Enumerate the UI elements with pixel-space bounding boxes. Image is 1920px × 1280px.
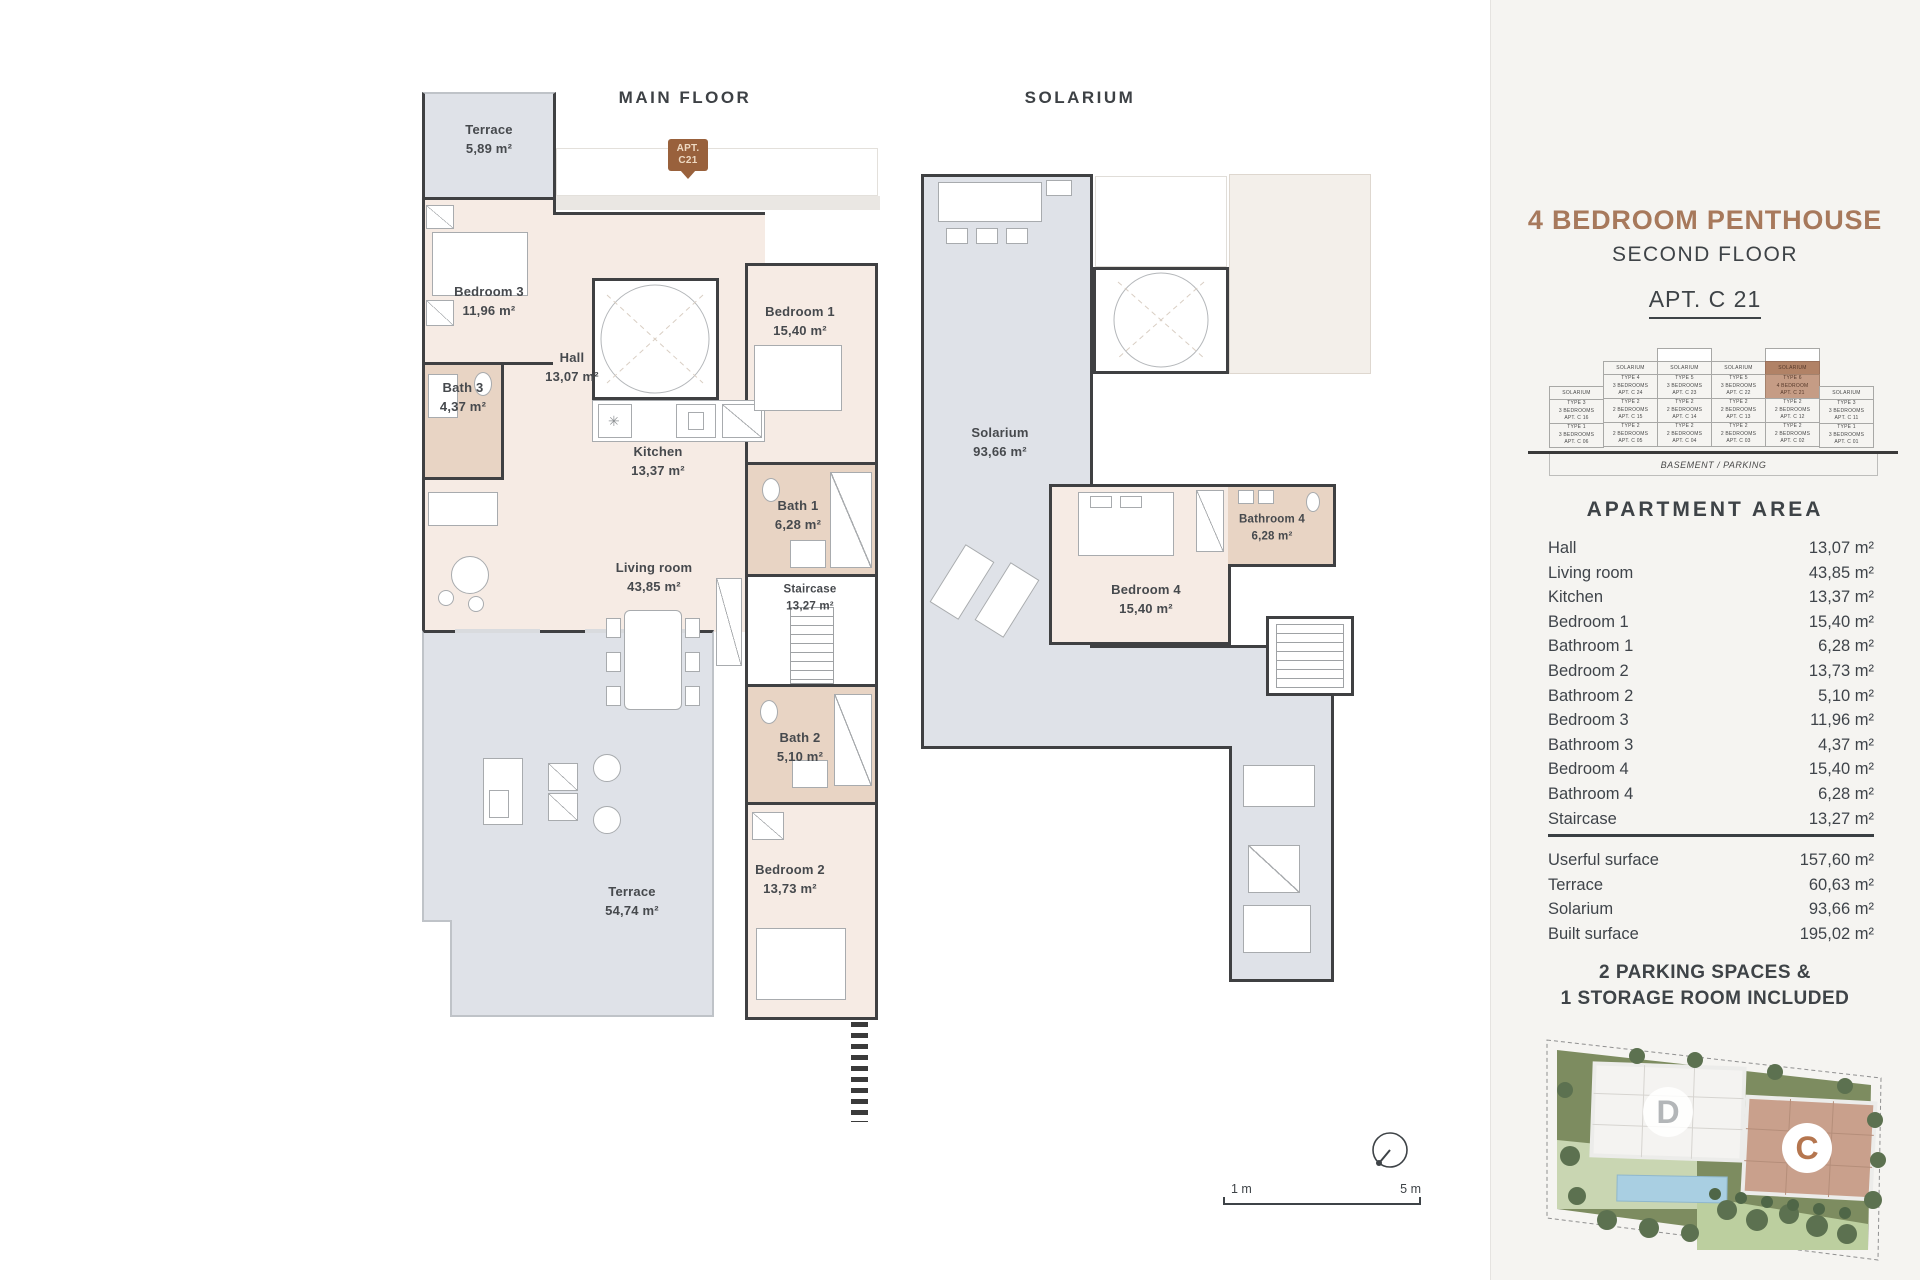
- building-stack-diagram: SOLARIUM TYPE 33 BEDROOMSAPT. C 16 TYPE …: [1549, 348, 1874, 448]
- stack-unit-c11[interactable]: TYPE 33 BEDROOMSAPT. C 11: [1819, 399, 1874, 424]
- pillow-icon: [1120, 496, 1142, 508]
- room-label: Bath 16,28 m²: [775, 497, 821, 535]
- room-label: Hall13,07 m²: [545, 349, 599, 387]
- parking-note-line1: 2 PARKING SPACES &: [1490, 962, 1920, 984]
- total-row: Built surface195,02 m²: [1548, 922, 1874, 947]
- stack-solarium-tag: SOLARIUM: [1657, 361, 1712, 375]
- sliding-door-opening: [455, 629, 540, 633]
- sink-icon: [1258, 490, 1274, 504]
- bed-icon: [754, 345, 842, 411]
- area-row: Bathroom 16,28 m²: [1548, 634, 1874, 659]
- neighbor-outline: [556, 148, 878, 196]
- stack-unit-c01[interactable]: TYPE 13 BEDROOMSAPT. C 01: [1819, 423, 1874, 448]
- chair-icon: [685, 652, 700, 672]
- basement-label: BASEMENT / PARKING: [1549, 454, 1878, 476]
- room-label: Terrace54,74 m²: [605, 883, 659, 921]
- stack-solarium-tag: SOLARIUM: [1549, 386, 1604, 400]
- area-row: Living room43,85 m²: [1548, 561, 1874, 586]
- wardrobe-icon: [426, 300, 454, 326]
- stack-unit-c21-selected[interactable]: TYPE 64 BEDROOMAPT. C 21: [1765, 374, 1820, 399]
- total-row: Terrace60,63 m²: [1548, 873, 1874, 898]
- page-title: 4 BEDROOM PENTHOUSE: [1490, 205, 1920, 236]
- pool: [1617, 1175, 1727, 1203]
- total-row: Userful surface157,60 m²: [1548, 848, 1874, 873]
- area-row: Bathroom 46,28 m²: [1548, 782, 1874, 807]
- room-label: Bedroom 115,40 m²: [765, 303, 835, 341]
- apt-location-pin[interactable]: APT. C21: [668, 139, 708, 171]
- floor-subtitle: SECOND FLOOR: [1490, 243, 1920, 267]
- chair-icon: [685, 618, 700, 638]
- scale-line: [1223, 1203, 1421, 1205]
- stack-unit-c02[interactable]: TYPE 22 BEDROOMSAPT. C 02: [1765, 422, 1820, 447]
- stack-unit-c15[interactable]: TYPE 22 BEDROOMSAPT. C 15: [1603, 398, 1658, 423]
- patio-circle-main: [595, 281, 716, 397]
- dining-table-icon: [624, 610, 682, 710]
- scale-bar: 1 m 5 m: [1223, 1182, 1421, 1210]
- neighbor-outline: [1095, 176, 1227, 267]
- site-map: D C: [1545, 1028, 1901, 1274]
- apt-pin-line2: C21: [668, 155, 708, 167]
- stool-icon: [468, 596, 484, 612]
- stack-column: SOLARIUM TYPE 43 BEDROOMSAPT. C 24 TYPE …: [1603, 348, 1658, 448]
- stack-solarium-tag: SOLARIUM: [1819, 386, 1874, 400]
- area-table-heading: APARTMENT AREA: [1490, 498, 1920, 522]
- chair-icon: [606, 652, 621, 672]
- stack-unit-c12[interactable]: TYPE 22 BEDROOMSAPT. C 12: [1765, 398, 1820, 423]
- stack-unit-c14[interactable]: TYPE 22 BEDROOMSAPT. C 14: [1657, 398, 1712, 423]
- stack-unit-c24[interactable]: TYPE 43 BEDROOMSAPT. C 24: [1603, 374, 1658, 399]
- stool-icon: [438, 590, 454, 606]
- outdoor-table-icon: [938, 182, 1042, 222]
- area-table: Hall13,07 m² Living room43,85 m² Kitchen…: [1548, 536, 1874, 831]
- stack-column: SOLARIUM TYPE 33 BEDROOMSAPT. C 11 TYPE …: [1819, 348, 1874, 448]
- stack-column-highlighted: SOLARIUM TYPE 64 BEDROOMAPT. C 21 TYPE 2…: [1765, 348, 1820, 448]
- area-row: Kitchen13,37 m²: [1548, 585, 1874, 610]
- stack-unit-c05[interactable]: TYPE 22 BEDROOMSAPT. C 05: [1603, 422, 1658, 447]
- area-row: Bathroom 34,37 m²: [1548, 733, 1874, 758]
- room-label: Bedroom 311,96 m²: [454, 283, 524, 321]
- table-divider: [1548, 834, 1874, 837]
- solarium-title: SOLARIUM: [1025, 88, 1136, 108]
- stack-unit-c22[interactable]: TYPE 53 BEDROOMSAPT. C 22: [1711, 374, 1766, 399]
- stair-treads-main: [790, 607, 834, 684]
- planter-icon: [548, 763, 578, 791]
- stack-roof-block: [1657, 348, 1712, 362]
- room-label: Terrace5,89 m²: [465, 121, 512, 159]
- room-label: Living room43,85 m²: [616, 559, 693, 597]
- building-d-label: D: [1656, 1094, 1679, 1130]
- outdoor-desk-icon: [1243, 905, 1311, 953]
- neighbor-roof: [1229, 174, 1371, 374]
- terrace-chair-icon: [489, 790, 509, 818]
- scale-tick: [1419, 1197, 1421, 1205]
- area-row: Bathroom 25,10 m²: [1548, 684, 1874, 709]
- area-row: Bedroom 115,40 m²: [1548, 610, 1874, 635]
- building-c-label: C: [1795, 1130, 1818, 1166]
- room-terrace-extension: [450, 920, 714, 1017]
- area-row: Bedroom 415,40 m²: [1548, 757, 1874, 782]
- chair-icon: [685, 686, 700, 706]
- scale-tick: [1223, 1197, 1225, 1205]
- neighbor-band: [553, 196, 880, 210]
- room-label: Staircase13,27 m²: [784, 581, 837, 614]
- planter-icon: [548, 793, 578, 821]
- area-row: Hall13,07 m²: [1548, 536, 1874, 561]
- room-label: Kitchen13,37 m²: [631, 443, 685, 481]
- stack-unit-c04[interactable]: TYPE 22 BEDROOMSAPT. C 04: [1657, 422, 1712, 447]
- area-row: Staircase13,27 m²: [1548, 807, 1874, 832]
- wardrobe-icon: [426, 205, 454, 229]
- planter-icon: [1248, 845, 1300, 893]
- stack-unit-c13[interactable]: TYPE 22 BEDROOMSAPT. C 13: [1711, 398, 1766, 423]
- sink-icon: [1238, 490, 1254, 504]
- room-label: Bath 34,37 m²: [440, 379, 486, 417]
- round-table-icon: [451, 556, 489, 594]
- apt-pin-line1: APT.: [668, 143, 708, 155]
- pillow-icon: [1090, 496, 1112, 508]
- vent-icon: ✳: [608, 414, 620, 428]
- parking-note-line2: 1 STORAGE ROOM INCLUDED: [1490, 988, 1920, 1010]
- room-label: Bathroom 46,28 m²: [1239, 511, 1305, 544]
- stack-roof-block: [1765, 348, 1820, 362]
- ground-line: [1528, 451, 1898, 454]
- chair-icon: [606, 618, 621, 638]
- room-label: Bath 25,10 m²: [777, 729, 823, 767]
- stack-unit-c23[interactable]: TYPE 53 BEDROOMSAPT. C 23: [1657, 374, 1712, 399]
- tv-unit-icon: [716, 578, 742, 666]
- stack-unit-c06[interactable]: TYPE 13 BEDROOMSAPT. C 06: [1549, 423, 1604, 448]
- patio-circle-solarium: [1096, 270, 1226, 371]
- round-chair-icon: [593, 754, 621, 782]
- toilet-icon: [760, 700, 778, 724]
- chair-icon: [976, 228, 998, 244]
- stack-column: SOLARIUM TYPE 53 BEDROOMSAPT. C 23 TYPE …: [1657, 348, 1712, 448]
- stack-column: SOLARIUM TYPE 53 BEDROOMSAPT. C 22 TYPE …: [1711, 348, 1766, 448]
- outdoor-desk-icon: [1243, 765, 1315, 807]
- scale-label-right: 5 m: [1400, 1182, 1421, 1196]
- room-label: Bedroom 213,73 m²: [755, 861, 825, 899]
- scale-label-left: 1 m: [1231, 1182, 1252, 1196]
- sink-basin-icon: [688, 412, 704, 430]
- area-row: Bedroom 213,73 m²: [1548, 659, 1874, 684]
- area-row: Bedroom 311,96 m²: [1548, 708, 1874, 733]
- totals-table: Userful surface157,60 m² Terrace60,63 m²…: [1548, 848, 1874, 946]
- shower-icon: [830, 472, 872, 568]
- vanity-icon: [790, 540, 826, 568]
- room-label: Solarium93,66 m²: [971, 424, 1028, 462]
- stack-unit-c16[interactable]: TYPE 33 BEDROOMSAPT. C 16: [1549, 399, 1604, 424]
- chair-icon: [1006, 228, 1028, 244]
- compass-icon: [1368, 1128, 1412, 1172]
- stair-treads-solarium: [1276, 624, 1344, 688]
- exterior-stair-hatch: [851, 1022, 868, 1122]
- room-label: Bedroom 415,40 m²: [1111, 581, 1181, 619]
- toilet-icon: [1306, 492, 1320, 512]
- bed-icon: [756, 928, 846, 1000]
- stack-unit-c03[interactable]: TYPE 22 BEDROOMSAPT. C 03: [1711, 422, 1766, 447]
- chair-icon: [946, 228, 968, 244]
- chair-icon: [606, 686, 621, 706]
- main-floor-title: MAIN FLOOR: [619, 88, 752, 108]
- stack-solarium-tag: SOLARIUM: [1603, 361, 1658, 375]
- round-chair-icon: [593, 806, 621, 834]
- ac-unit-icon: [1046, 180, 1072, 196]
- apartment-number: APT. C 21: [1490, 286, 1920, 313]
- page: MAIN FLOOR SOLARIUM ✳: [0, 0, 1920, 1280]
- stack-column: SOLARIUM TYPE 33 BEDROOMSAPT. C 16 TYPE …: [1549, 348, 1604, 448]
- stack-solarium-tag-selected: SOLARIUM: [1765, 361, 1820, 375]
- wardrobe-icon: [1196, 490, 1224, 552]
- shower-icon: [834, 694, 872, 786]
- stack-solarium-tag: SOLARIUM: [1711, 361, 1766, 375]
- desk-icon: [428, 492, 498, 526]
- total-row: Solarium93,66 m²: [1548, 897, 1874, 922]
- wardrobe-icon: [752, 812, 784, 840]
